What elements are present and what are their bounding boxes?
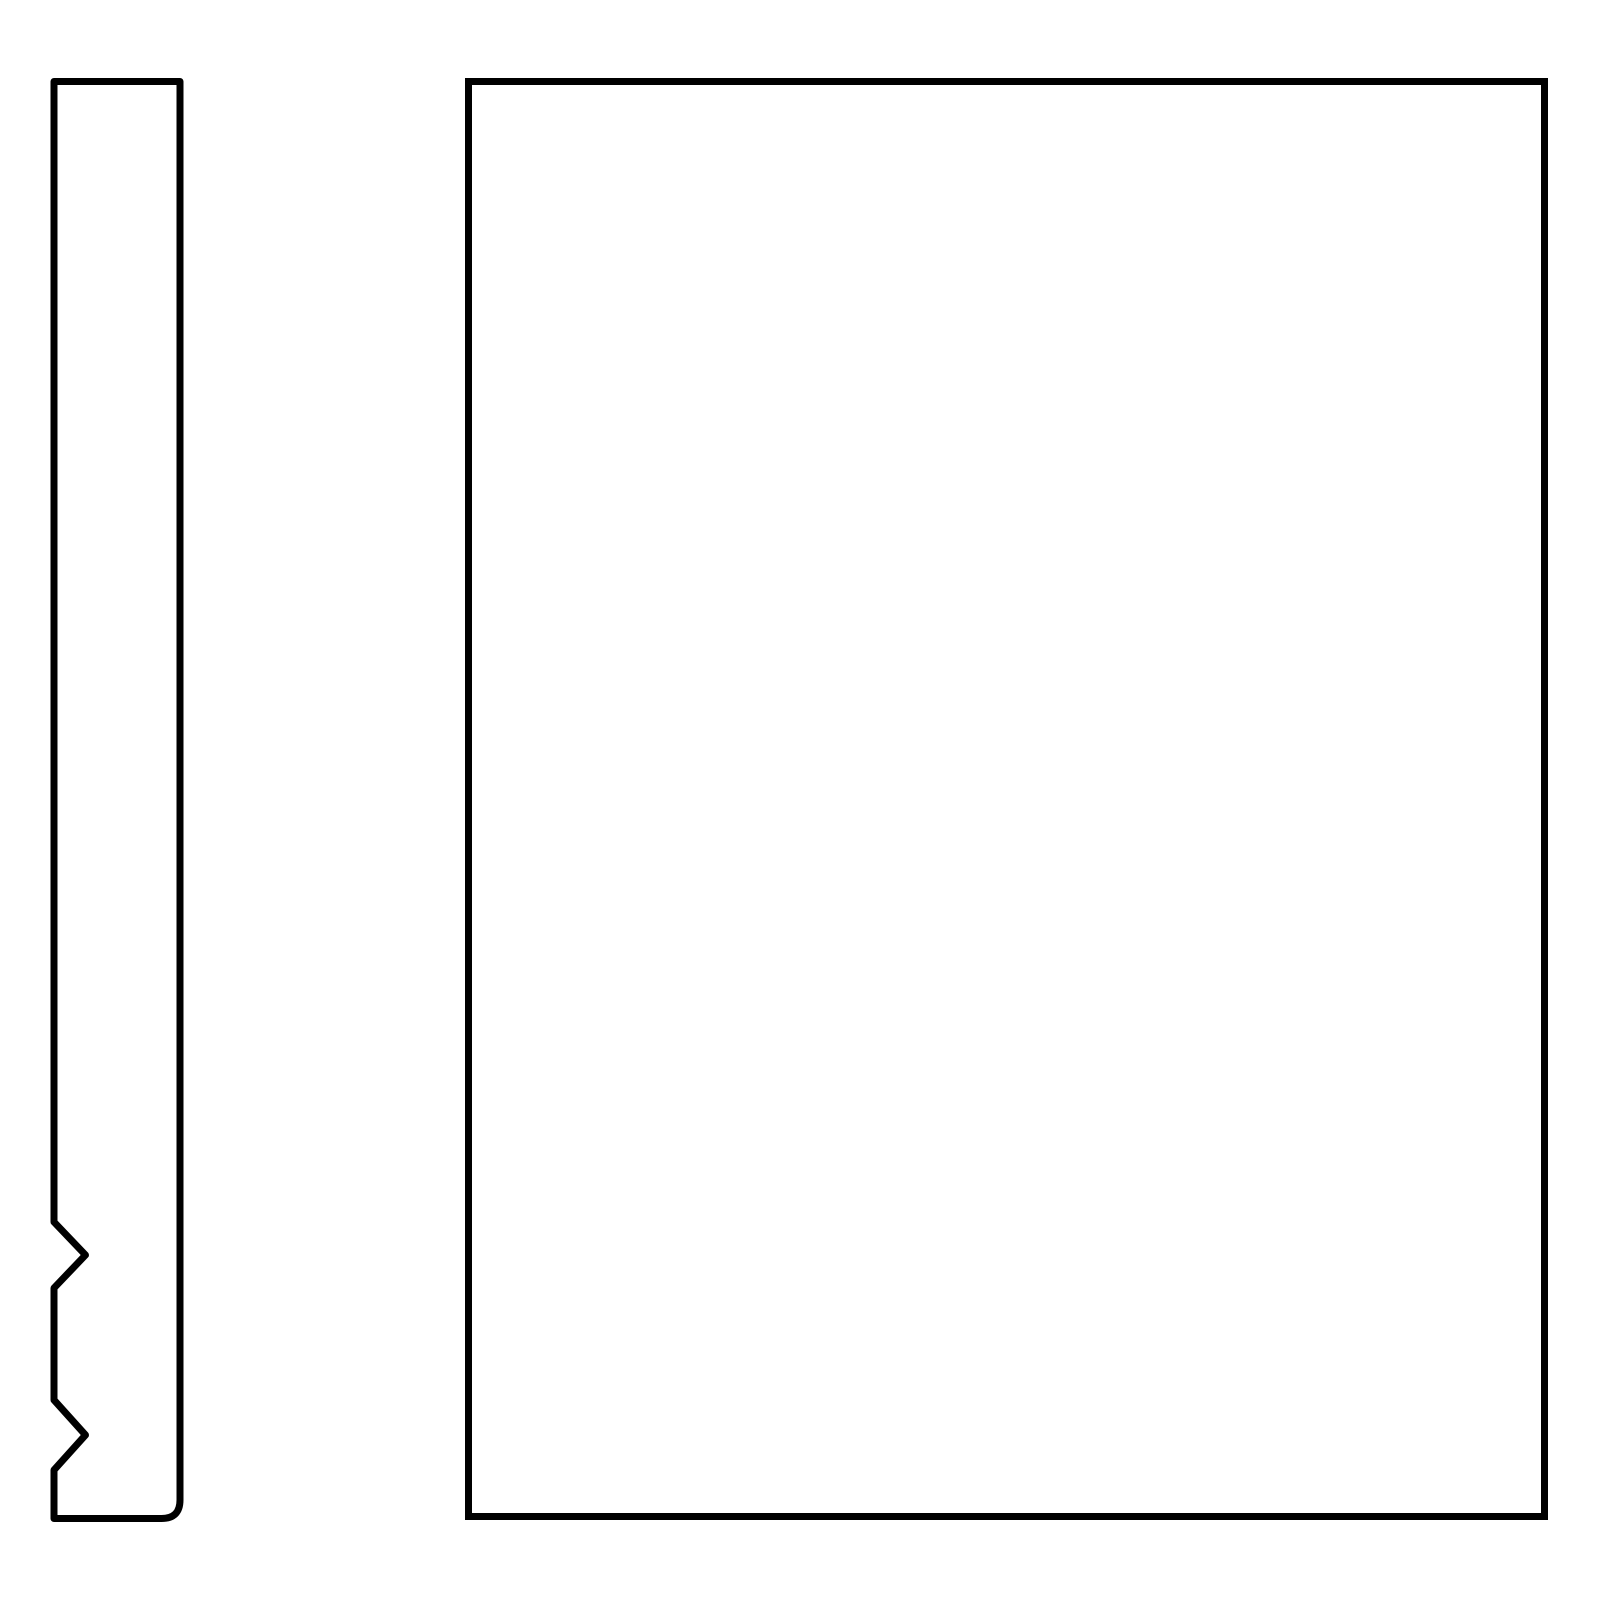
notched-strip-shape [54, 82, 180, 1519]
drawing-canvas [0, 0, 1600, 1600]
line-drawing [0, 0, 1600, 1600]
rectangle-panel-shape [469, 82, 1545, 1517]
